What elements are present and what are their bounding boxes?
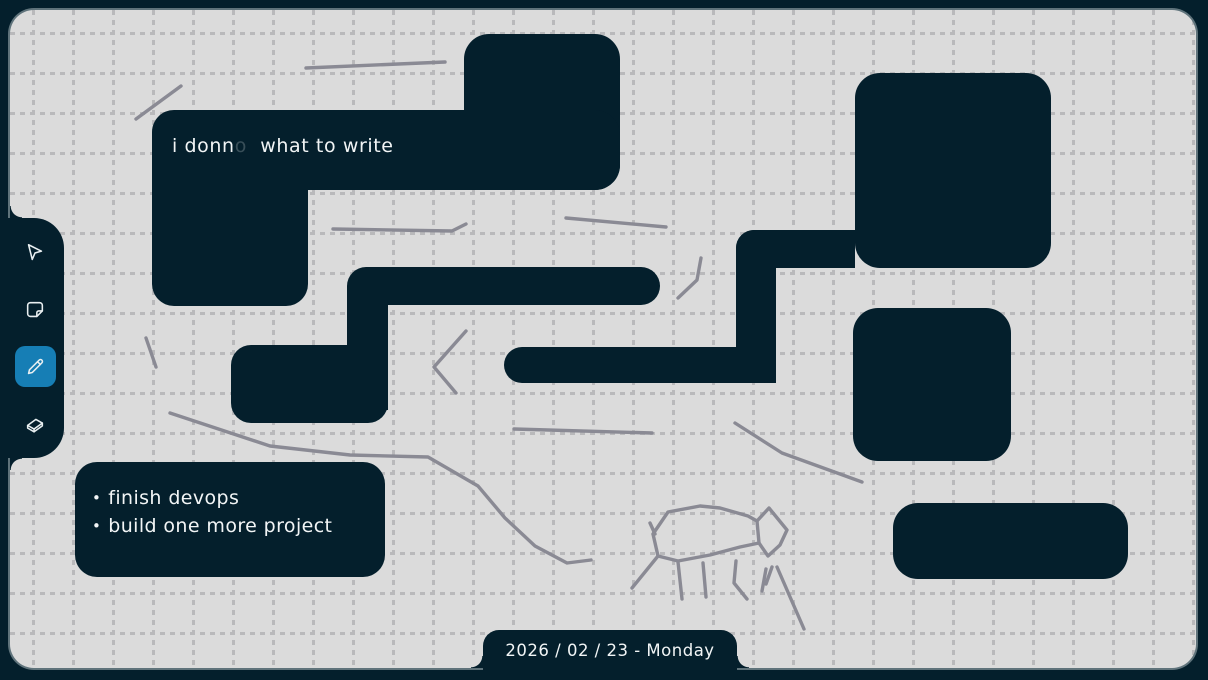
date-label: 2026 / 02 / 23 - Monday bbox=[505, 641, 714, 660]
note-text-faded-part: o bbox=[235, 135, 247, 157]
pen-stroke[interactable] bbox=[766, 567, 772, 584]
pen-stroke[interactable] bbox=[566, 218, 666, 227]
pen-stroke[interactable] bbox=[632, 556, 658, 588]
todo-list[interactable]: • finish devops • build one more project bbox=[92, 484, 332, 540]
pen-stroke[interactable] bbox=[514, 429, 652, 433]
pen-stroke[interactable] bbox=[653, 506, 759, 561]
drawn-rectangle[interactable] bbox=[231, 345, 388, 423]
date-tab: 2026 / 02 / 23 - Monday bbox=[483, 630, 737, 670]
date-tab-left-fillet bbox=[471, 656, 483, 668]
bullet-glyph: • bbox=[92, 484, 101, 512]
note-tool-button[interactable] bbox=[15, 289, 56, 330]
note-text-part: what to write bbox=[247, 135, 394, 157]
select-tool-button[interactable] bbox=[15, 232, 56, 273]
drawn-rectangle[interactable] bbox=[853, 308, 1011, 461]
cursor-icon bbox=[24, 242, 46, 264]
pen-stroke[interactable] bbox=[757, 508, 787, 556]
pen-stroke[interactable] bbox=[678, 258, 701, 298]
note-text-part: i donn bbox=[172, 135, 235, 157]
pen-stroke[interactable] bbox=[306, 62, 445, 68]
note-icon bbox=[24, 299, 46, 321]
drawn-rectangle[interactable] bbox=[855, 73, 1051, 268]
pen-stroke[interactable] bbox=[703, 563, 706, 597]
pen-stroke[interactable] bbox=[650, 523, 655, 534]
pen-stroke[interactable] bbox=[762, 569, 766, 591]
canvas-content: i donno what to write • finish devops • … bbox=[10, 10, 1196, 668]
todo-item: • build one more project bbox=[92, 512, 332, 540]
drawn-rectangle[interactable] bbox=[893, 503, 1128, 579]
toolbar-top-fillet bbox=[10, 206, 22, 218]
drawn-rectangle[interactable] bbox=[152, 178, 308, 306]
pen-stroke[interactable] bbox=[734, 561, 747, 599]
pencil-tool-button[interactable] bbox=[15, 346, 56, 387]
todo-item: • finish devops bbox=[92, 484, 332, 512]
todo-item-text: build one more project bbox=[108, 512, 332, 540]
eraser-tool-button[interactable] bbox=[15, 403, 56, 444]
pencil-icon bbox=[24, 356, 46, 378]
pen-stroke[interactable] bbox=[735, 423, 862, 482]
whiteboard-canvas[interactable]: i donno what to write • finish devops • … bbox=[10, 10, 1196, 668]
app-frame: i donno what to write • finish devops • … bbox=[0, 0, 1208, 680]
pen-stroke[interactable] bbox=[146, 338, 156, 367]
eraser-icon bbox=[24, 413, 46, 435]
date-tab-right-fillet bbox=[737, 656, 749, 668]
pen-stroke[interactable] bbox=[333, 224, 466, 231]
todo-item-text: finish devops bbox=[108, 484, 239, 512]
pen-stroke[interactable] bbox=[678, 562, 682, 599]
toolbar bbox=[0, 218, 64, 458]
drawn-rectangle[interactable] bbox=[347, 267, 660, 305]
pen-stroke[interactable] bbox=[434, 331, 466, 393]
toolbar-bottom-fillet bbox=[10, 458, 22, 470]
note-text[interactable]: i donno what to write bbox=[172, 135, 394, 157]
drawn-rectangle[interactable] bbox=[736, 230, 855, 268]
bullet-glyph: • bbox=[92, 512, 101, 540]
pen-stroke[interactable] bbox=[777, 567, 804, 629]
